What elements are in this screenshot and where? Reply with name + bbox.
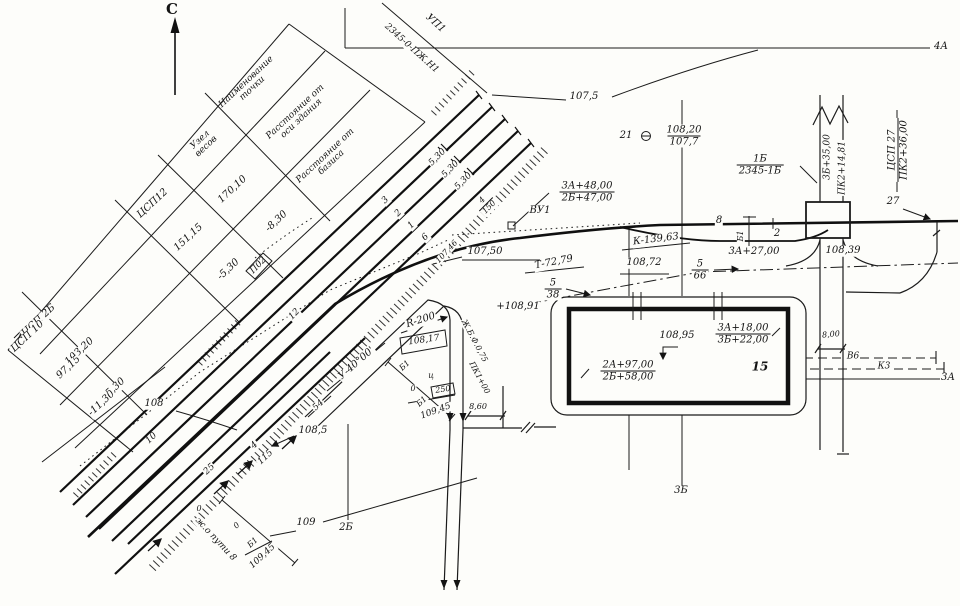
axis-3b-label: 3Б (673, 486, 689, 497)
point-1b: 1Б 2345-1Б (737, 154, 784, 177)
north-arrow (0, 0, 960, 606)
fraction-bottom: 107,7 (668, 136, 701, 148)
fraction-top: 3А+48,00 (560, 181, 615, 192)
fraction-bottom: 2Б+58,00 (601, 371, 656, 383)
elevation-108-72: 108,72 (626, 258, 663, 269)
utility-v6-label: В6 (846, 352, 860, 361)
axis-4a-label: 4А (933, 42, 949, 53)
grade-5-38: 5 38 (545, 278, 562, 301)
fraction-top: 108,20 (665, 125, 704, 136)
fraction-bottom: 2Б+47,00 (560, 192, 615, 204)
fraction-top: 5 (695, 259, 705, 270)
point-21-elevation: 108,20 107,7 (665, 125, 704, 148)
contour-108-5: 108,5 (298, 426, 329, 437)
point-csp27: ЦСП 27 ПК2+36,00 (887, 118, 910, 182)
building-corner-sta-2: 2А+97,00 2Б+58,00 (601, 360, 656, 383)
elevation-108-39: 108,39 (825, 246, 862, 257)
fraction-top: 1Б (751, 154, 769, 165)
dimension-8-00: 8,00 (821, 330, 841, 340)
utility-k3-label: К3 (877, 362, 892, 371)
fraction-bottom: 3Б+22,00 (716, 334, 771, 346)
track-27-number: 27 (886, 197, 901, 208)
base-zero-label: 0 (409, 385, 416, 393)
track-2-number: 2 (773, 229, 781, 240)
vu1-stationing: 3А+48,00 2Б+47,00 (560, 181, 615, 204)
track-8-number: 8 (715, 216, 723, 227)
point-21-number: 21 (619, 131, 634, 142)
fraction-bottom: 66 (692, 270, 709, 282)
road-pk-label: ПК2+14,81 (838, 140, 847, 196)
base-zero-label: 0 (195, 505, 202, 513)
contour-109: 109 (295, 518, 316, 529)
dimension-8-60: 8,60 (468, 403, 488, 411)
building-corner-sta-1: 3А+18,00 3Б+22,00 (716, 323, 771, 346)
fraction-top: 2А+97,00 (601, 360, 656, 371)
base-c-label: ц (427, 372, 435, 380)
fraction-top: 5 (548, 278, 558, 289)
fraction-bottom: 2345-1Б (737, 165, 784, 177)
fraction-bottom: 38 (545, 289, 562, 301)
building-number: 15 (751, 361, 770, 374)
contour-107-50: 107,50 (467, 247, 504, 258)
contour-107-5: 107,5 (569, 92, 600, 103)
fraction-top: 3А+18,00 (716, 323, 771, 334)
elevation-108-91: +108,91 (495, 302, 540, 313)
grade-5-66: 5 66 (692, 259, 709, 282)
station-3a27: 3А+27,00 (728, 247, 781, 258)
contour-108: 108 (143, 399, 164, 410)
vu1-label: ВУ1 (529, 206, 552, 217)
road-station-label: 3Б+35,00 (823, 133, 832, 181)
fraction-top: ЦСП 27 (887, 128, 898, 173)
axis-2b-label: 2Б (338, 523, 354, 534)
base-b1-track-mark: Б1 (737, 230, 745, 243)
building-elevation: 108,95 (659, 331, 696, 342)
site-plan-drawing: С Наименование точки Расстояние от оси з… (0, 0, 960, 606)
fraction-bottom: ПК2+36,00 (898, 118, 910, 182)
axis-3a-label: 3А (940, 373, 956, 384)
